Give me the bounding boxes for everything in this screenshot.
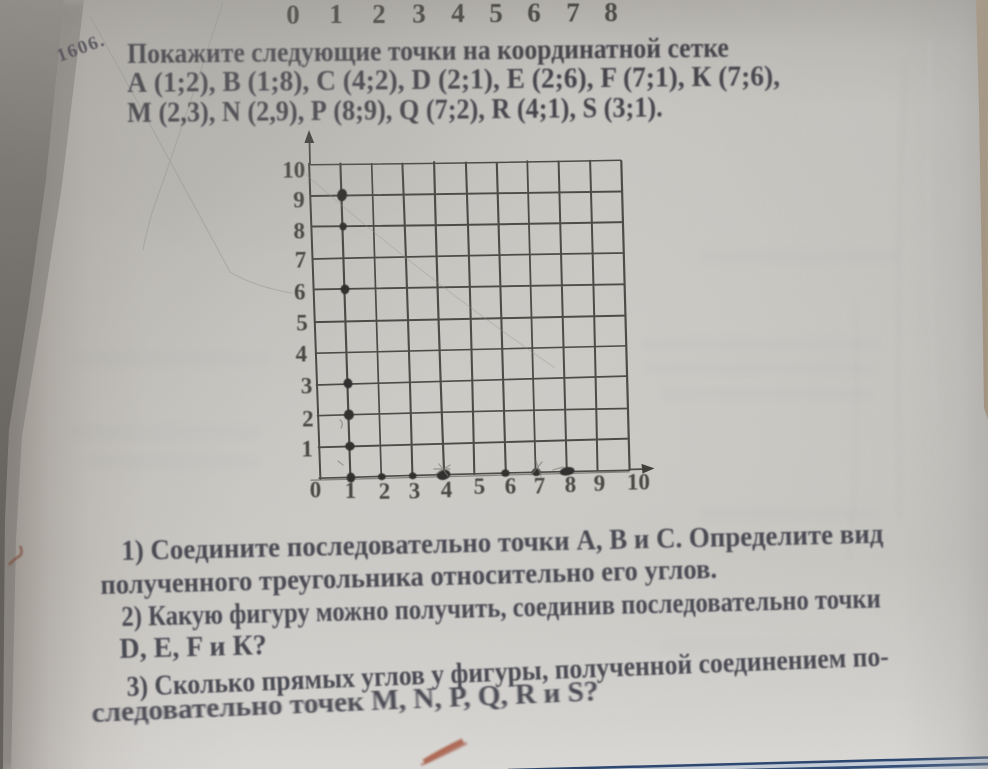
svg-text:5: 5 (489, 0, 503, 28)
svg-text:6: 6 (294, 279, 306, 304)
svg-text:2: 2 (302, 406, 314, 431)
svg-text:9: 9 (293, 187, 305, 212)
svg-text:4: 4 (441, 477, 453, 502)
svg-text:2: 2 (379, 479, 391, 504)
svg-text:9: 9 (594, 471, 606, 496)
svg-text:7: 7 (534, 473, 546, 498)
svg-text:3: 3 (412, 0, 426, 29)
svg-text:1: 1 (329, 0, 343, 29)
svg-text:5: 5 (474, 474, 486, 499)
svg-text:4: 4 (295, 341, 307, 366)
svg-text:8: 8 (604, 0, 618, 27)
svg-text:1: 1 (345, 478, 357, 503)
svg-text:6: 6 (527, 0, 541, 28)
svg-text:1: 1 (301, 436, 313, 461)
svg-text:0: 0 (286, 0, 300, 30)
svg-text:8: 8 (565, 472, 577, 497)
svg-text:8: 8 (293, 218, 305, 243)
svg-text:7: 7 (566, 0, 580, 27)
svg-text:10: 10 (627, 469, 650, 494)
svg-text:7: 7 (295, 247, 307, 272)
svg-text:5: 5 (296, 310, 308, 335)
svg-text:10: 10 (282, 157, 305, 182)
svg-text:4: 4 (451, 0, 465, 28)
svg-text:2: 2 (372, 0, 386, 29)
svg-text:0: 0 (310, 477, 322, 502)
svg-text:3: 3 (301, 373, 313, 398)
svg-text:6: 6 (505, 474, 517, 499)
svg-text:3: 3 (409, 478, 421, 503)
